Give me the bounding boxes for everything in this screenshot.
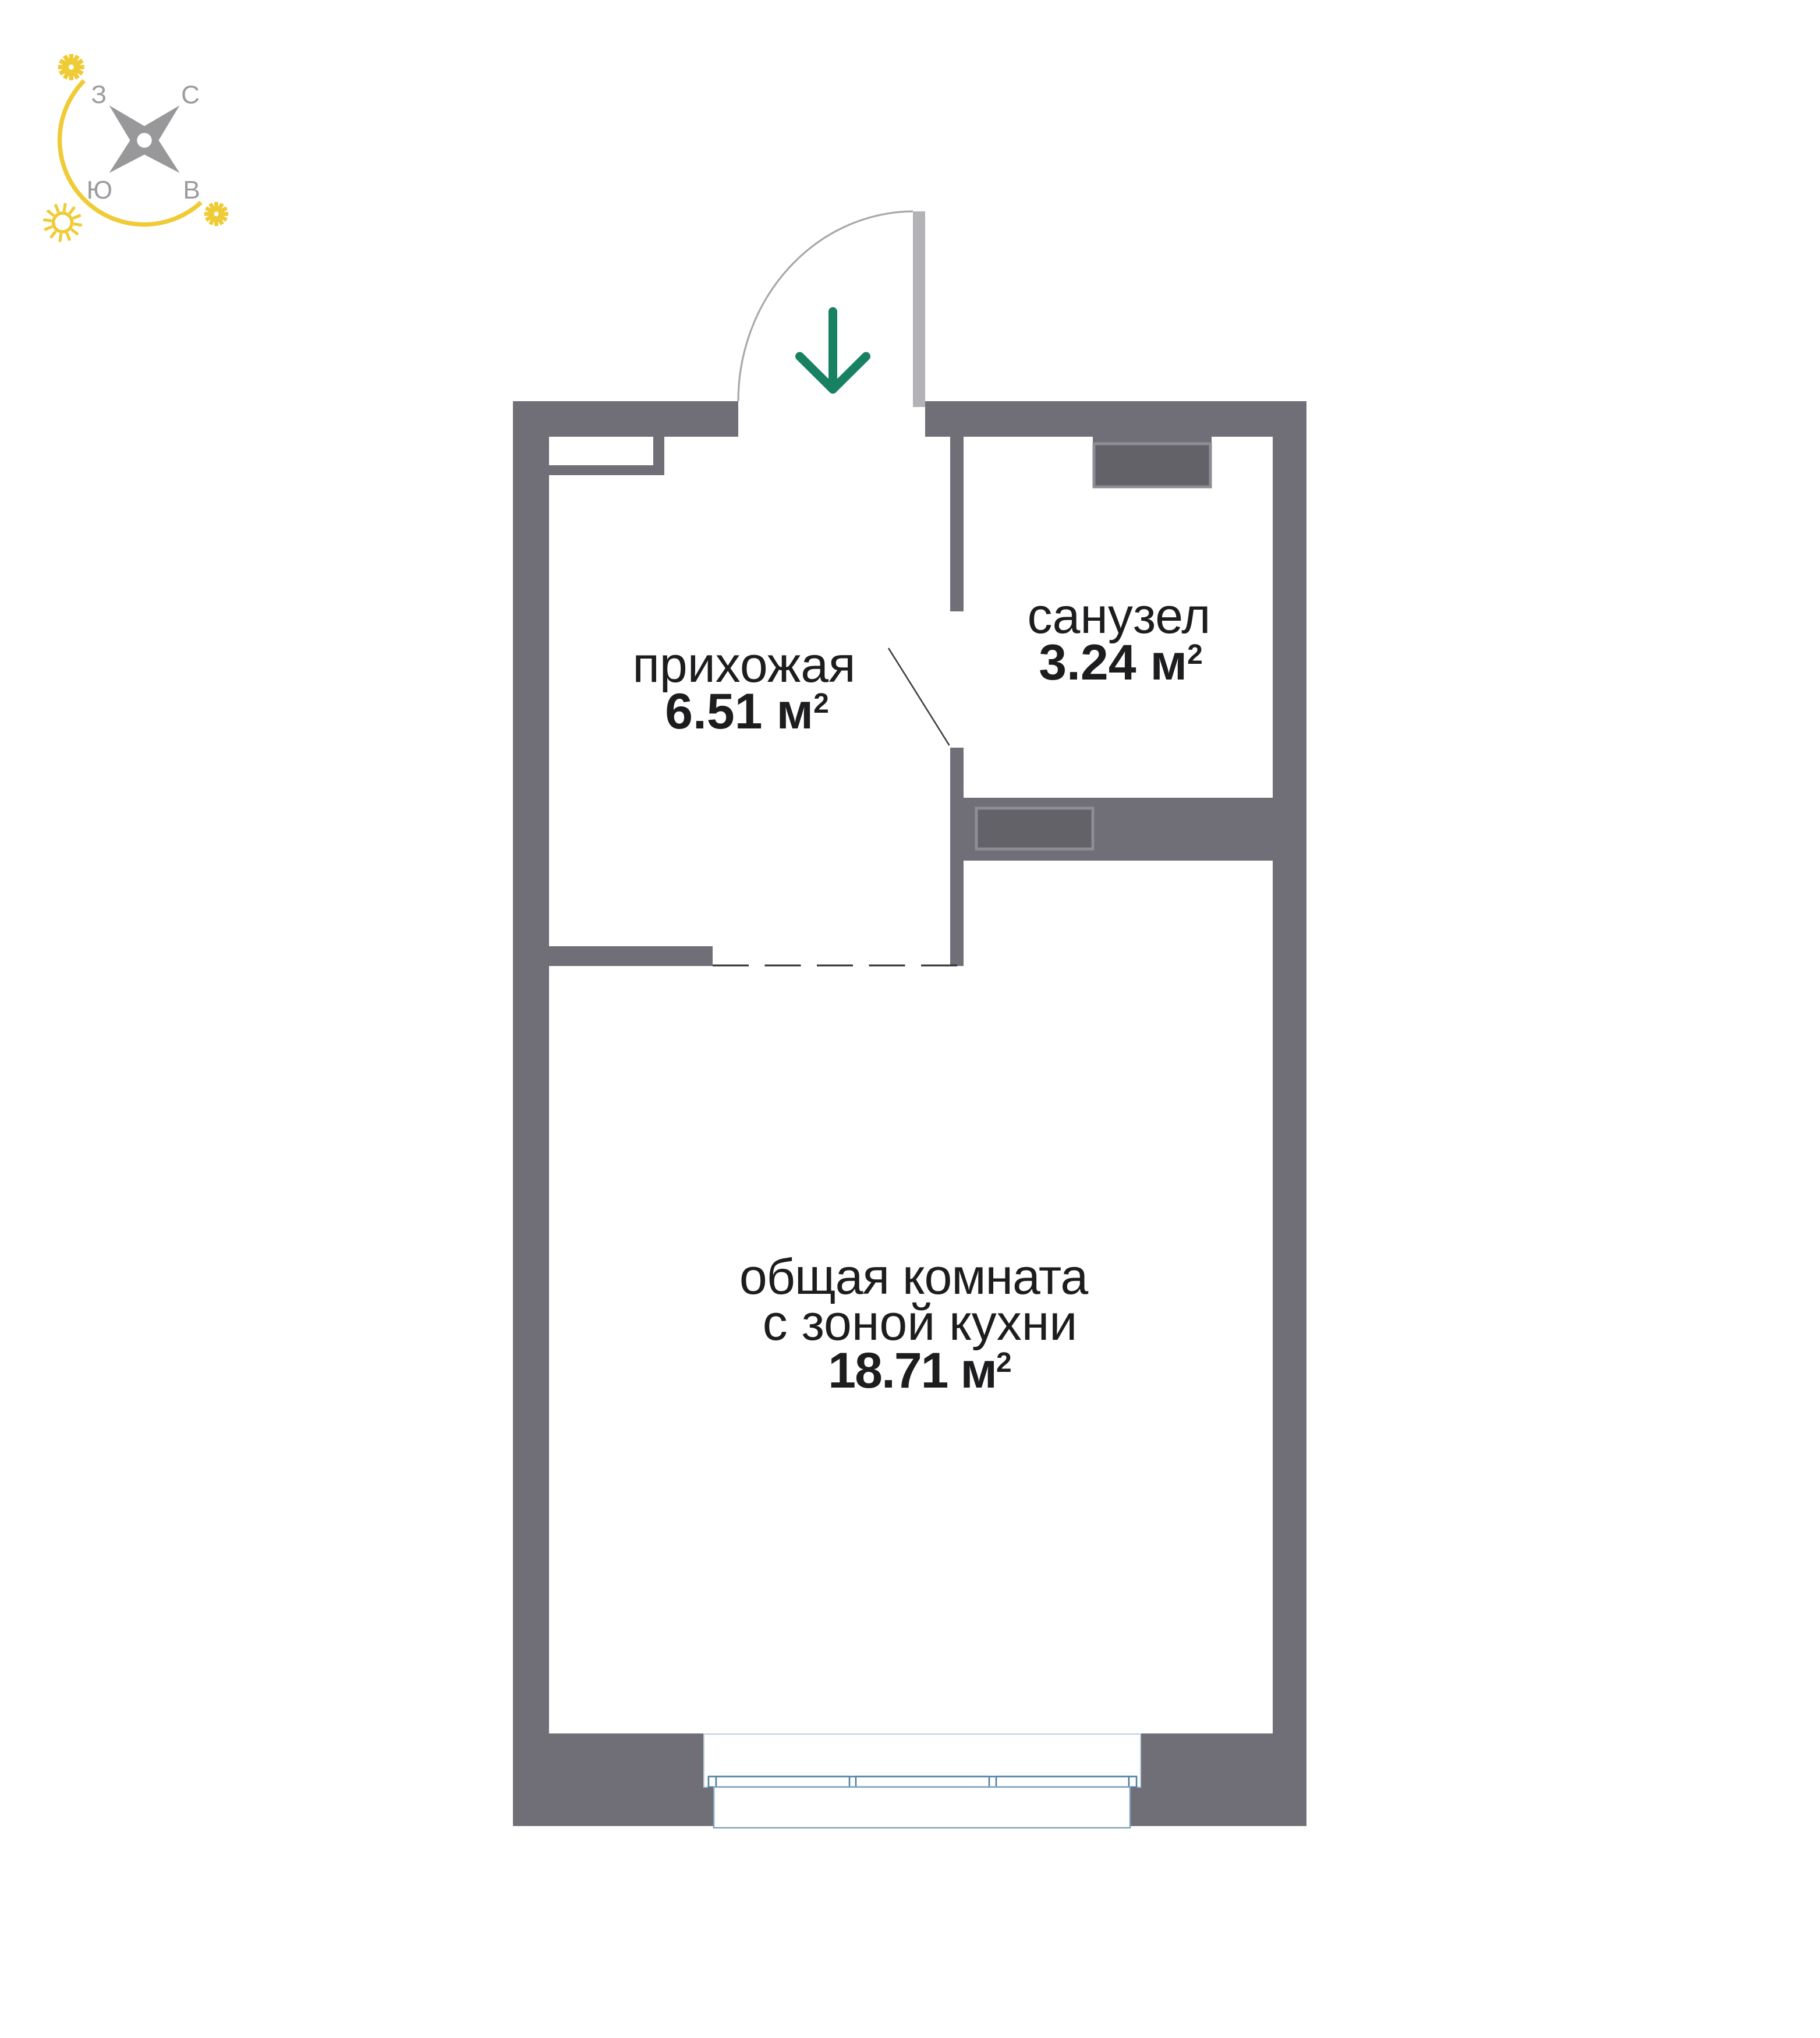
svg-text:С: С: [181, 81, 200, 109]
svg-text:В: В: [183, 176, 200, 204]
svg-text:3.24 м2: 3.24 м2: [1039, 635, 1203, 691]
svg-text:18.71 м2: 18.71 м2: [828, 1343, 1011, 1399]
svg-text:Ю: Ю: [87, 176, 112, 204]
svg-text:6.51 м2: 6.51 м2: [665, 684, 829, 740]
svg-text:З: З: [91, 80, 107, 109]
